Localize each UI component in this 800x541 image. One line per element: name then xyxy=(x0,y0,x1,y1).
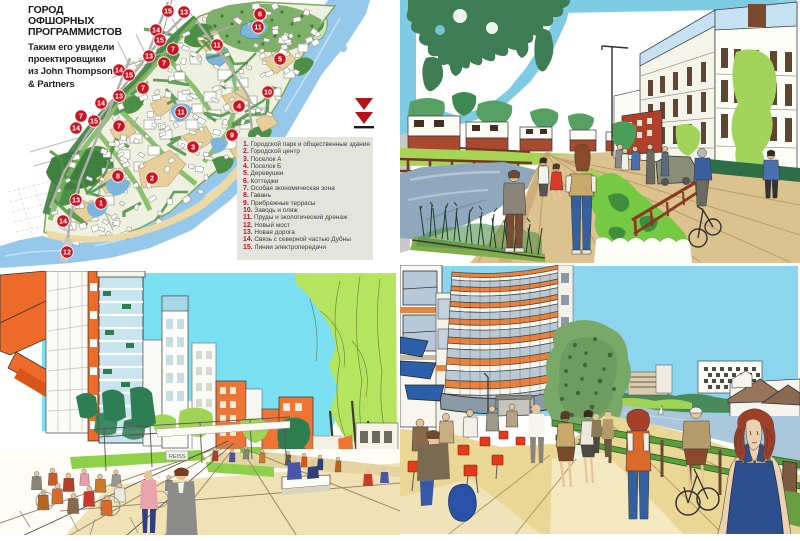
svg-text:2: 2 xyxy=(150,174,154,183)
svg-text:14: 14 xyxy=(72,124,80,133)
svg-text:13: 13 xyxy=(180,8,188,17)
svg-text:7: 7 xyxy=(162,59,166,68)
svg-text:7: 7 xyxy=(171,45,175,54)
svg-text:14: 14 xyxy=(97,99,105,108)
svg-text:7: 7 xyxy=(117,122,121,131)
svg-text:14: 14 xyxy=(115,66,123,75)
svg-text:13: 13 xyxy=(72,196,80,205)
svg-text:14: 14 xyxy=(152,26,160,35)
svg-text:11: 11 xyxy=(213,41,221,50)
svg-text:15: 15 xyxy=(90,117,98,126)
svg-text:7: 7 xyxy=(79,112,83,121)
svg-text:15: 15 xyxy=(156,36,164,45)
svg-text:3: 3 xyxy=(191,143,195,152)
svg-text:13: 13 xyxy=(115,92,123,101)
svg-text:13: 13 xyxy=(145,52,153,61)
svg-text:4: 4 xyxy=(237,102,241,111)
svg-text:9: 9 xyxy=(230,131,234,140)
svg-text:12: 12 xyxy=(63,248,71,257)
svg-text:5: 5 xyxy=(278,55,282,64)
svg-text:6: 6 xyxy=(258,10,262,19)
svg-text:1: 1 xyxy=(99,199,103,208)
svg-text:11: 11 xyxy=(254,23,262,32)
svg-text:REISS: REISS xyxy=(169,454,186,460)
svg-text:14: 14 xyxy=(59,217,67,226)
svg-text:8: 8 xyxy=(116,172,120,181)
svg-text:15: 15 xyxy=(164,7,172,16)
svg-text:15: 15 xyxy=(125,71,133,80)
svg-text:7: 7 xyxy=(141,84,145,93)
svg-text:11: 11 xyxy=(177,108,185,117)
svg-text:10: 10 xyxy=(264,88,272,97)
